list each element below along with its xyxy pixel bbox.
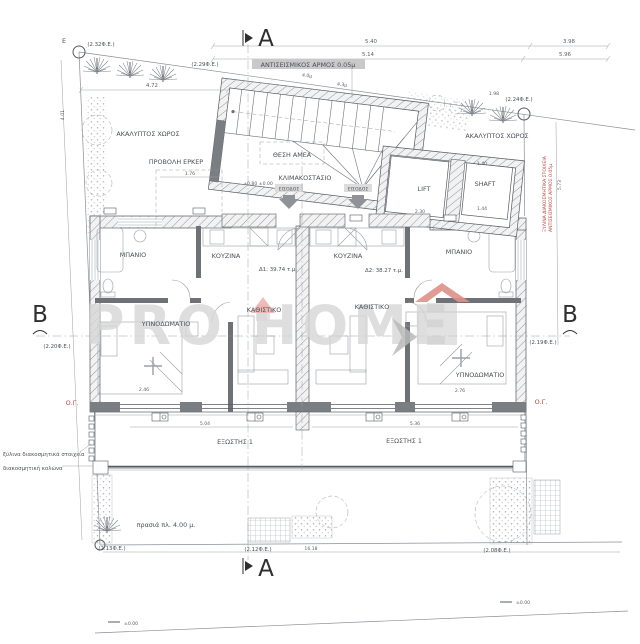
kitchen-left-label: ΚΟΥΖΙΝΑ <box>212 252 241 260</box>
dim-bay: 1.76 <box>185 171 195 177</box>
shaft-label: SHAFT <box>475 180 496 188</box>
seismic-joint-label: ΑΝΤΙΣΕΙΣΜΙΚΟΣ ΑΡΜΟΣ 0.05μ <box>261 61 356 69</box>
dim-left-vert: 4.01 <box>60 110 66 120</box>
balcony-right-label: ΕΞΩΣΤΗΣ 1 <box>386 437 422 445</box>
ref-bottom-left: (2.13Φ.Ε.) <box>98 546 125 552</box>
dim-bed-r: 2.76 <box>455 388 465 394</box>
section-b-right-marker-icon <box>563 331 577 335</box>
stair-level-label: +0.80 ±0.00 <box>243 181 273 187</box>
ground-mark-left: ±0.00 <box>124 621 138 627</box>
ground-mark-right: ±0.00 <box>516 600 530 606</box>
dim-lift-w: 2.30 <box>415 209 425 215</box>
dim-top-d: 5.96 <box>559 52 572 58</box>
ref-top-left: (2.32Φ.Ε.) <box>87 42 114 48</box>
dim-top-b: 5.14 <box>362 52 375 58</box>
section-a-top-label: A <box>258 26 274 52</box>
dim-balc-l: 5.04 <box>200 421 210 427</box>
dim-shaft-b: 1.44 <box>477 206 487 212</box>
living-right-label: ΚΑΘΙΣΤΙΚΟ <box>355 303 390 311</box>
ref-top-2: (2.29Φ.Ε.) <box>191 62 218 68</box>
dim-roof-a: 4.0μ <box>302 72 313 79</box>
lift-label: LIFT <box>418 185 431 193</box>
dim-balc-r: 5.36 <box>410 421 420 427</box>
open-space-right-label: ΑΚΑΛΥΠΤΟΣ ΧΩΡΟΣ <box>465 132 528 140</box>
dim-198: 1.98 <box>489 91 499 97</box>
living-left-label: ΚΑΘΙΣΤΙΚΟ <box>247 306 282 314</box>
bedroom-right-label: ΥΠΝΟΔΩΜΑΤΙΟ <box>455 371 504 379</box>
note-decorative-column: διακοσμητική κολώνα <box>3 465 63 472</box>
ground-line <box>95 611 628 633</box>
bathroom-right-label: ΜΠΑΝΙΟ <box>446 248 472 256</box>
ref-mid-right: (2.19Φ.Ε.) <box>529 340 556 346</box>
dim-right-vert: 5.73 <box>557 180 563 190</box>
side-note-1: ΞΥΛΙΝΑ ΔΙΑΚΟΣΜΗΤΙΚΑ ΣΤΟΙΧΕΙΑ <box>542 155 548 232</box>
dim-top-a: 5.40 <box>365 39 378 45</box>
entrance-left-label: ΕΙΣΟΔΟΣ <box>279 187 300 193</box>
corner-letter: E <box>62 37 66 45</box>
dim-bed-l: 2.46 <box>139 387 149 393</box>
ref-mid-left: (2.20Φ.Ε.) <box>43 344 70 350</box>
tree-icon <box>489 106 517 123</box>
section-a-top-marker-icon <box>245 33 253 43</box>
ada-spot-label: ΘΕΣΗ ΑΜΕΑ <box>273 151 312 159</box>
green-strip-label: πρασιά πλ. 4.00 μ. <box>137 521 196 529</box>
dim-shaft-t: 1.40 <box>477 161 487 167</box>
apartment1-area-label: Δ1: 39.74 τ.μ. <box>259 267 297 273</box>
note-wood-elements: ξύλινα διακοσμητικά στοιχεία <box>3 451 85 458</box>
dim-left-top: 4.72 <box>146 83 158 89</box>
section-a-bottom-marker-icon <box>245 561 253 571</box>
bathroom-left-label: ΜΠΑΝΙΟ <box>120 251 146 259</box>
section-b-left-label: B <box>32 302 48 328</box>
entrance-right-label: ΕΙΣΟΔΟΣ <box>348 187 369 193</box>
tree-icon <box>149 65 177 82</box>
dim-bottom: 16.18 <box>304 546 317 552</box>
ref-top-right: (2.24Φ.Ε.) <box>505 97 532 103</box>
planters <box>92 475 628 633</box>
bedroom-left-label: ΥΠΝΟΔΩΜΑΤΙΟ <box>141 320 190 328</box>
stairwell-label: ΚΛΙΜΑΚΟΣΤΑΣΙΟ <box>279 174 332 182</box>
floor-plan-svg: PRO HOME A A B B E (2.32Φ.Ε.) (2.29Φ.Ε.)… <box>0 0 640 644</box>
tree-icon <box>116 61 144 78</box>
ref-bottom-right: (2.08Φ.Ε.) <box>483 548 510 554</box>
building-line-left-label: Ο.Γ. <box>66 399 79 407</box>
section-b-left-marker-icon <box>33 331 47 335</box>
kitchen-right-label: ΚΟΥΖΙΝΑ <box>334 252 363 260</box>
building-line-right-label: Ο.Γ. <box>535 398 548 406</box>
dim-roof-b: 4.3μ <box>337 81 348 88</box>
bay-projection-label: ΠΡΟΒΟΛΗ ΕΡΚΕΡ <box>149 158 203 166</box>
decorative-column <box>93 461 108 474</box>
tree-icon <box>83 57 111 74</box>
apartment2-area-label: Δ2: 38.27 τ.μ. <box>365 268 403 274</box>
balcony-left-label: ΕΞΩΣΤΗΣ 1 <box>217 438 253 446</box>
ref-bottom-center: (2.12Φ.Ε.) <box>244 547 271 553</box>
side-note-2: ΑΝΤΙΣΕΙΣΜΙΚΟΣ ΑΡΜΟΣ 0.05μ <box>548 164 554 232</box>
floor-plan-canvas: PRO HOME A A B B E (2.32Φ.Ε.) (2.29Φ.Ε.)… <box>0 0 640 644</box>
watermark-home: HOME <box>252 294 454 357</box>
open-space-left-label: ΑΚΑΛΥΠΤΟΣ ΧΩΡΟΣ <box>116 130 179 138</box>
section-a-bottom-label: A <box>258 556 274 582</box>
section-b-right-label: B <box>562 302 578 328</box>
dim-top-c: 3.98 <box>563 39 576 45</box>
